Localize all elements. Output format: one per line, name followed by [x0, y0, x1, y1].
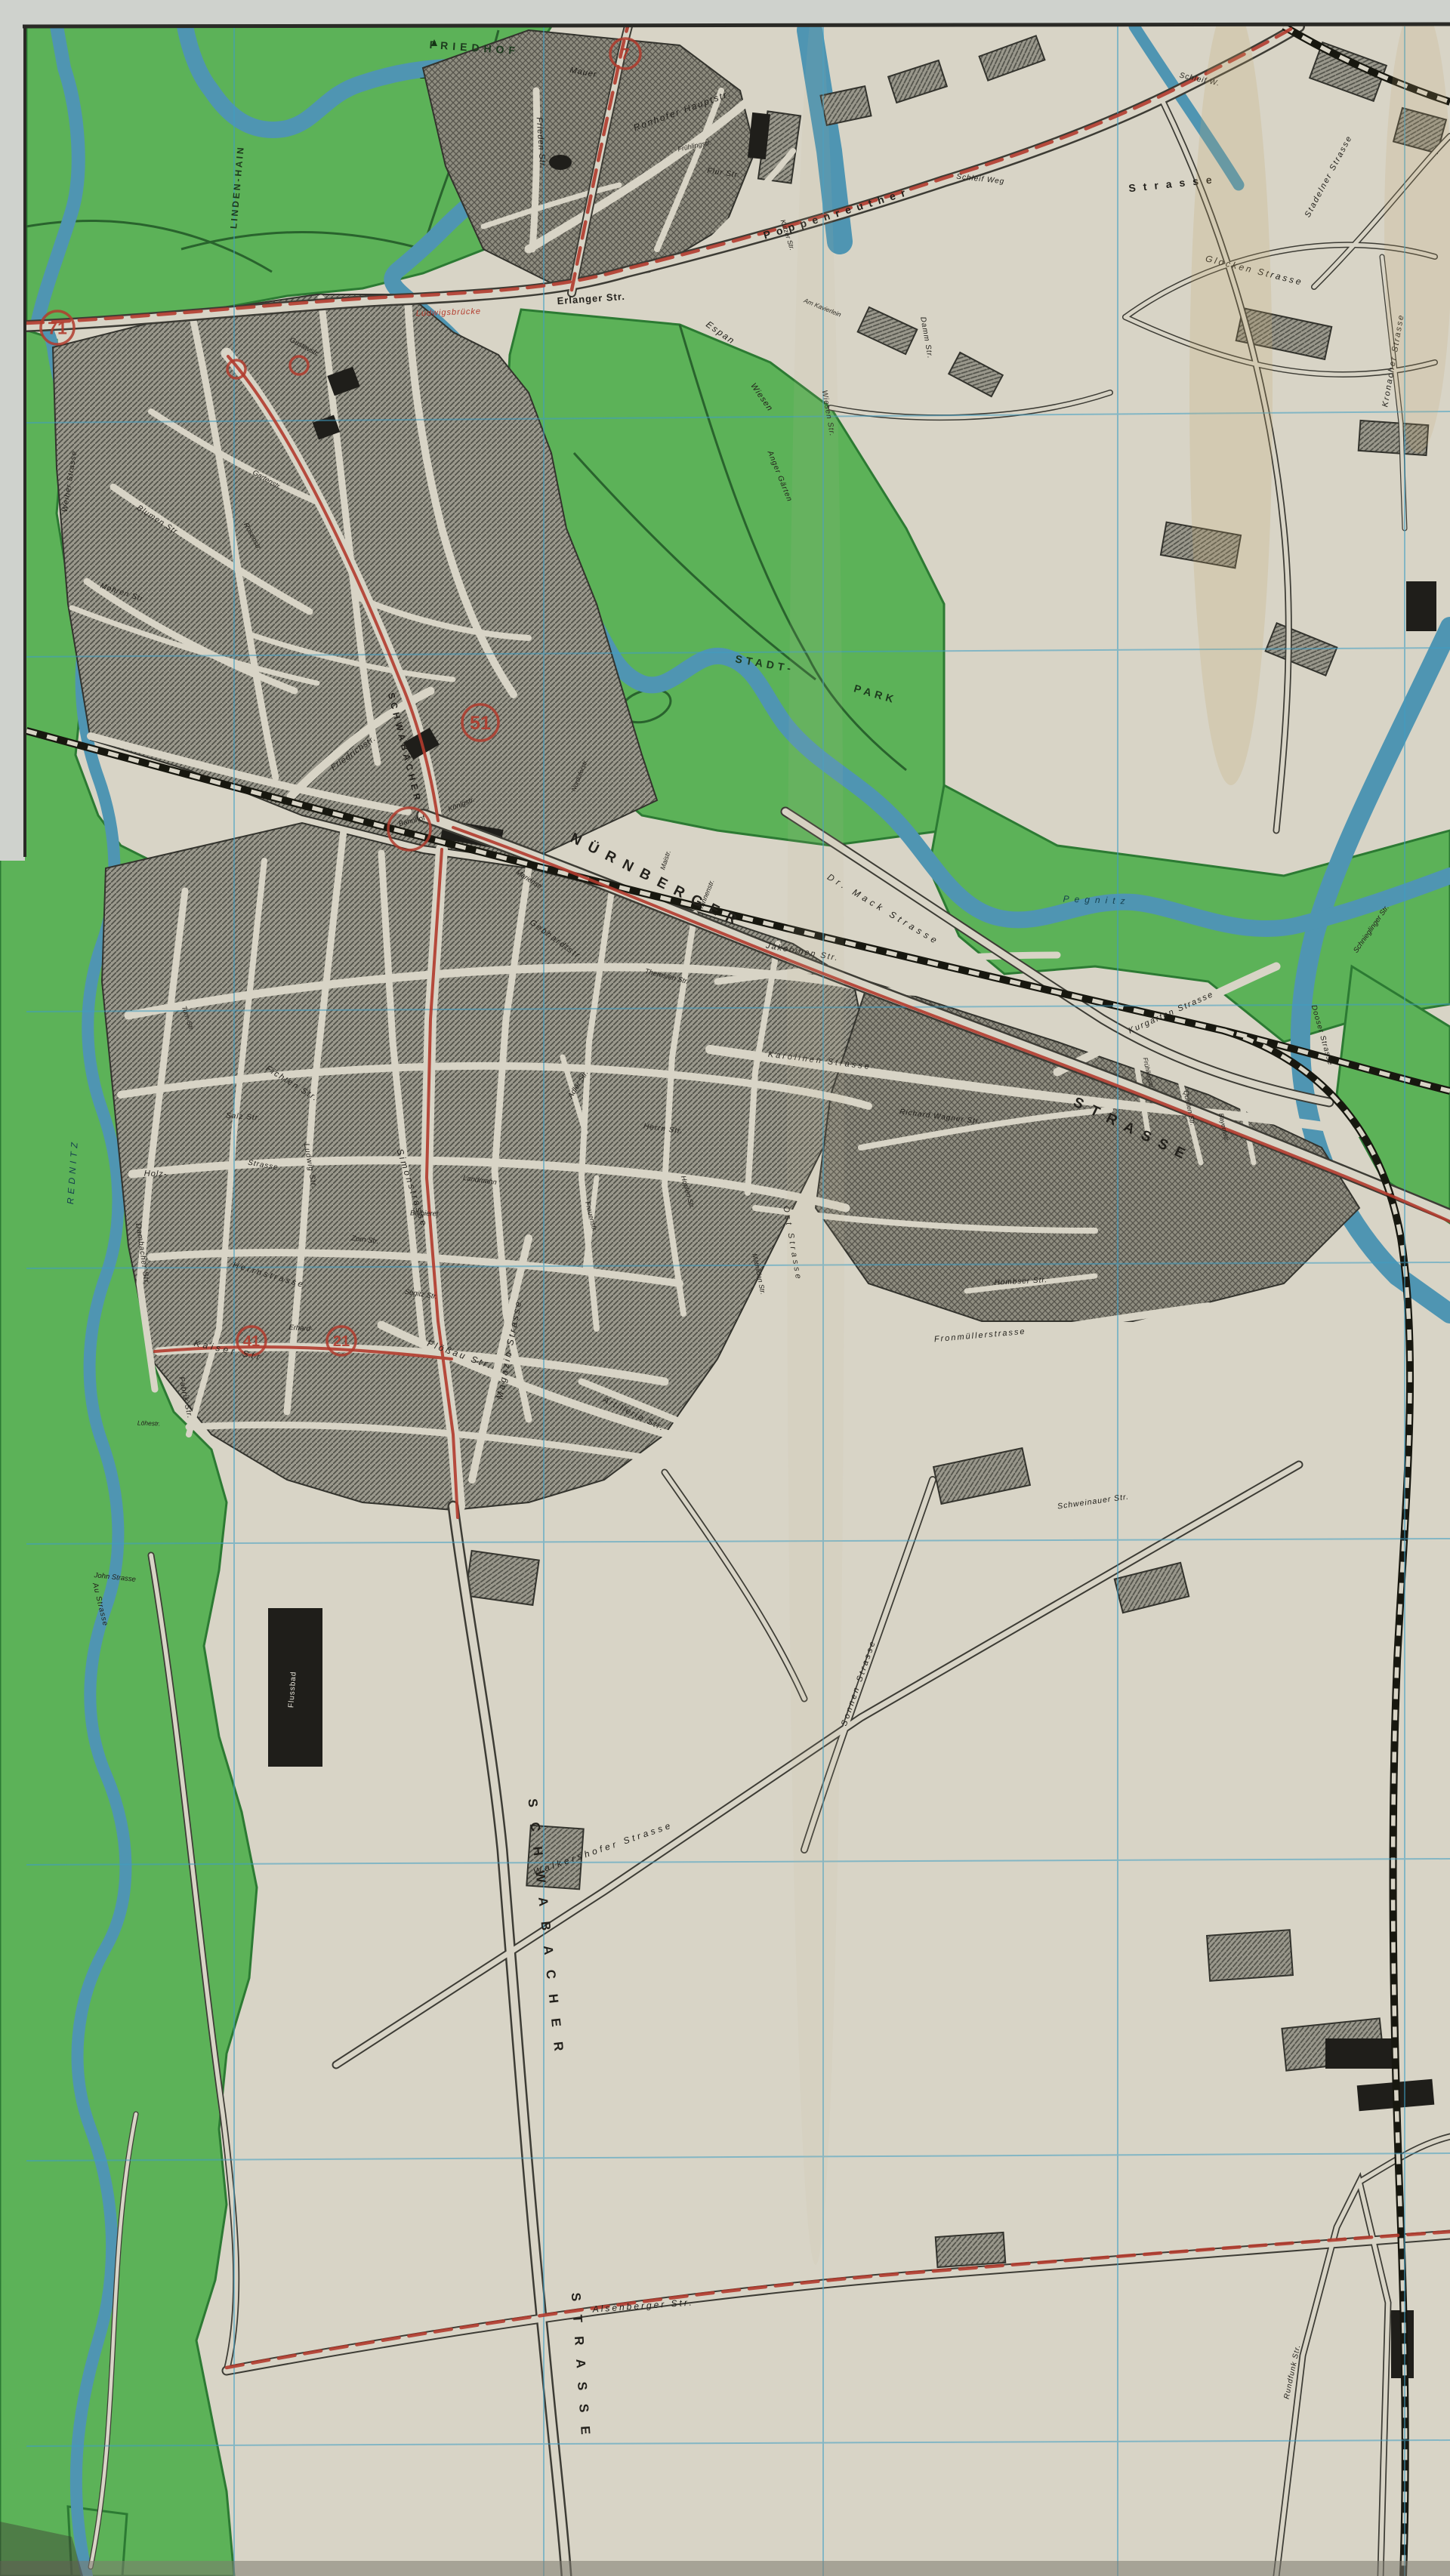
map-photo: 771514121 FRIEDHOFFrieden Str.MauerRonho… — [0, 0, 1450, 2576]
map-border-top — [23, 24, 1450, 26]
tram-route-number: 41 — [243, 1333, 260, 1350]
tram-route-number: 21 — [333, 1333, 350, 1350]
photo-edge-bottom — [0, 2561, 1450, 2576]
street-label: Holz- — [144, 1169, 168, 1179]
fold-stain — [1189, 0, 1273, 785]
tram-route-number: 71 — [48, 318, 67, 337]
street-label: Löhestr. — [137, 1419, 161, 1427]
street-label: Balbierer — [410, 1209, 440, 1218]
tram-route-number: 7 — [621, 46, 630, 63]
freight-shed — [1325, 2038, 1393, 2069]
street-label: Erhard- — [288, 1323, 313, 1333]
paper-edge-left — [0, 0, 25, 861]
tram-route-number: 51 — [470, 713, 491, 734]
paper-edge-top — [0, 0, 1450, 26]
map-canvas: 771514121 FRIEDHOFFrieden Str.MauerRonho… — [0, 0, 1450, 2576]
